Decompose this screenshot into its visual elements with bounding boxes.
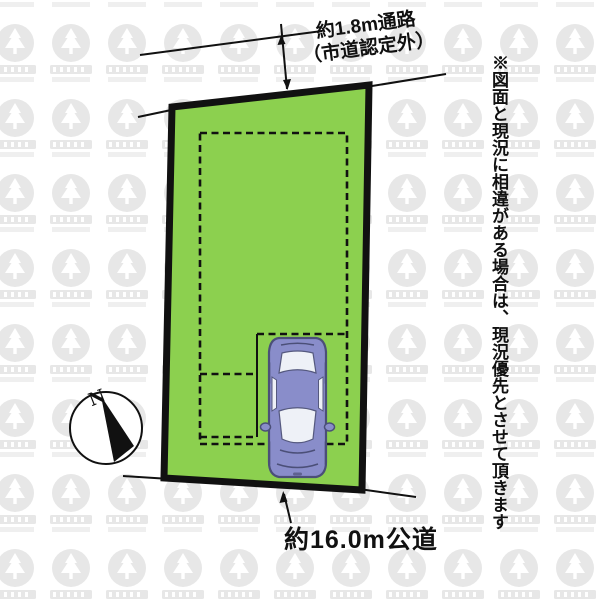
- bottom-dimension-label: 約16.0m公道: [284, 520, 438, 556]
- car-top-view-icon: [261, 338, 335, 477]
- car-front-windshield: [279, 408, 316, 443]
- car-mirror-right: [325, 423, 335, 431]
- car-mirror-left: [261, 423, 271, 431]
- car-side-window-right: [319, 377, 324, 411]
- disclaimer-vertical-text: ※図面と現況に相違がある場合は、現況優先とさせて頂きます: [478, 54, 508, 528]
- site-plan-svg: N: [0, 0, 600, 600]
- site-plan-screenshot: N 約1.8m通路 （市道認定外） 約16.0m公道 ※図面と現況に相違がある場…: [0, 0, 600, 600]
- car-rear-window: [279, 351, 316, 373]
- car-side-window-left: [272, 377, 277, 411]
